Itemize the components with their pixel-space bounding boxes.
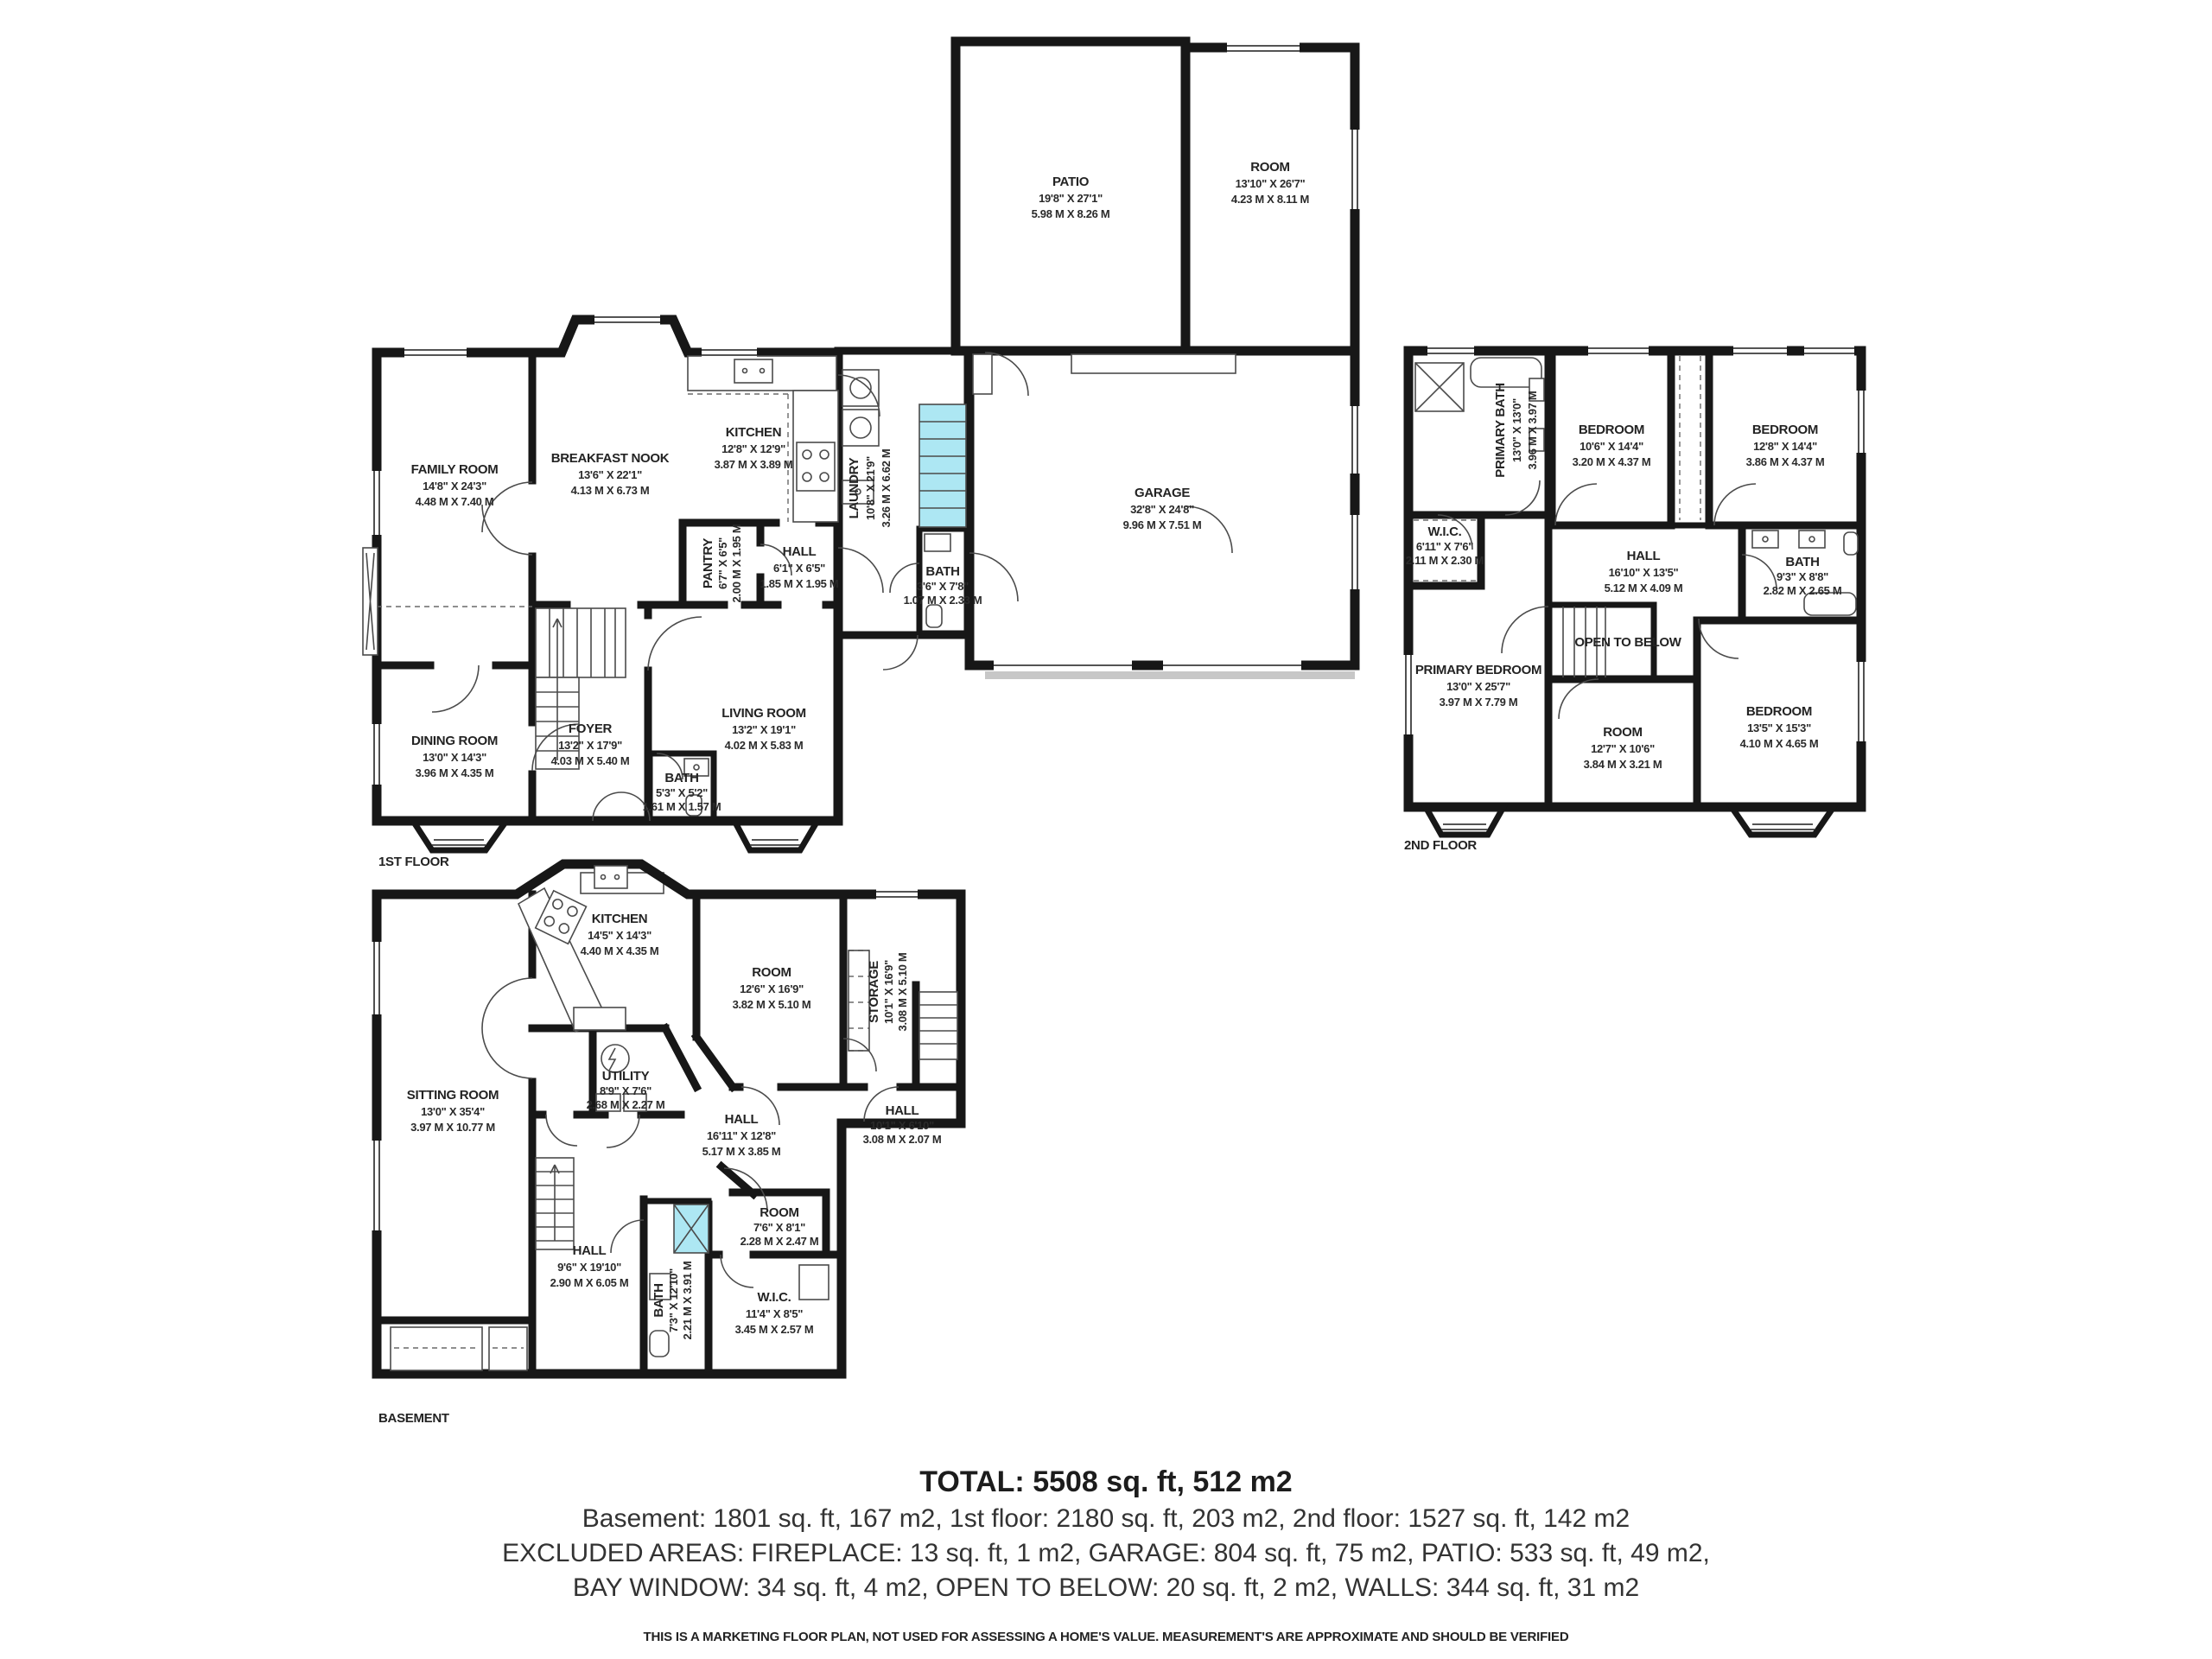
svg-text:4.40 M X 4.35 M: 4.40 M X 4.35 M: [581, 944, 659, 957]
room-label-storage: STORAGE 10'1" X 16'9" 3.08 M X 5.10 M: [867, 953, 909, 1032]
room-label-laundry: LAUNDRY 10'8" X 21'9" 3.26 M X 6.62 M: [847, 449, 893, 528]
room-label-family-room: FAMILY ROOM 14'8" X 24'3" 4.48 M X 7.40 …: [411, 462, 499, 508]
floor-label-2nd: 2ND FLOOR: [1404, 838, 1477, 853]
svg-text:5.17 M X 3.85 M: 5.17 M X 3.85 M: [702, 1145, 781, 1158]
room-label-top-room: ROOM 13'10" X 26'7" 4.23 M X 8.11 M: [1231, 160, 1309, 206]
room-label-kitchen1: KITCHEN 12'8" X 12'9" 3.87 M X 3.89 M: [715, 425, 793, 471]
room-label-utility: UTILITY 8'9" X 7'6" 2.68 M X 2.27 M: [587, 1069, 665, 1111]
svg-text:13'2" X 17'9": 13'2" X 17'9": [558, 739, 622, 752]
room-label-basement-small-room: ROOM 7'6" X 8'1" 2.28 M X 2.47 M: [741, 1205, 819, 1248]
svg-text:3.97 M X 7.79 M: 3.97 M X 7.79 M: [1440, 696, 1518, 709]
room-label-basement-hall-right: HALL 10'1" X 6'10" 3.08 M X 2.07 M: [863, 1103, 942, 1146]
svg-text:13'2" X 19'1": 13'2" X 19'1": [732, 723, 796, 736]
svg-text:4.23 M X 8.11 M: 4.23 M X 8.11 M: [1231, 193, 1309, 206]
svg-text:HALL: HALL: [1627, 549, 1661, 563]
floor-plan-drawing: FAMILY ROOM 14'8" X 24'3" 4.48 M X 7.40 …: [0, 0, 2212, 1659]
svg-text:7'6" X 8'1": 7'6" X 8'1": [753, 1221, 805, 1234]
room-label-room2: ROOM 12'7" X 10'6" 3.84 M X 3.21 M: [1584, 725, 1662, 771]
basement-closets: [391, 1327, 527, 1370]
svg-text:9'6" X 19'10": 9'6" X 19'10": [557, 1261, 621, 1274]
svg-text:3'6" X 7'8": 3'6" X 7'8": [917, 580, 969, 593]
svg-text:12'8" X 14'4": 12'8" X 14'4": [1753, 440, 1817, 453]
svg-text:4.13 M X 6.73 M: 4.13 M X 6.73 M: [571, 484, 650, 497]
svg-text:11'4" X 8'5": 11'4" X 8'5": [746, 1307, 803, 1320]
svg-text:DINING ROOM: DINING ROOM: [411, 734, 498, 748]
floor-plan-page: { "colors": { "wall":"#171717", "bath":"…: [0, 0, 2212, 1659]
svg-text:KITCHEN: KITCHEN: [726, 425, 782, 440]
svg-text:LIVING ROOM: LIVING ROOM: [721, 706, 806, 721]
svg-text:3.20 M X 4.37 M: 3.20 M X 4.37 M: [1573, 455, 1651, 468]
driveway-edge: [985, 671, 1355, 679]
laundry-stairs: [919, 404, 966, 527]
bedroom2-room: [1709, 351, 1861, 525]
room-label-hall1: HALL 6'1" X 6'5" 1.85 M X 1.95 M: [760, 544, 839, 590]
svg-text:3.96 M X 4.35 M: 3.96 M X 4.35 M: [416, 766, 494, 779]
svg-text:FOYER: FOYER: [569, 721, 613, 736]
bedroom-closets: [1671, 351, 1709, 525]
svg-text:BEDROOM: BEDROOM: [1752, 423, 1818, 437]
fireplace: [363, 548, 378, 655]
svg-text:2.90 M X 6.05 M: 2.90 M X 6.05 M: [550, 1276, 629, 1289]
svg-text:2.68 M X 2.27 M: 2.68 M X 2.27 M: [587, 1098, 665, 1111]
room-label-primary-bedroom: PRIMARY BEDROOM 13'0" X 25'7" 3.97 M X 7…: [1415, 663, 1541, 709]
svg-text:12'6" X 16'9": 12'6" X 16'9": [740, 982, 804, 995]
bedroom1-room: [1552, 351, 1671, 525]
svg-text:HALL: HALL: [725, 1112, 759, 1127]
svg-text:KITCHEN: KITCHEN: [592, 912, 648, 926]
svg-text:HALL: HALL: [573, 1243, 607, 1258]
svg-text:2.00 M X 1.95 M: 2.00 M X 1.95 M: [730, 524, 743, 603]
svg-text:4.02 M X 5.83 M: 4.02 M X 5.83 M: [725, 739, 804, 752]
svg-text:ROOM: ROOM: [1603, 725, 1642, 740]
svg-text:10'1" X 16'9": 10'1" X 16'9": [882, 960, 895, 1024]
svg-text:ROOM: ROOM: [760, 1205, 798, 1220]
svg-text:4.03 M X 5.40 M: 4.03 M X 5.40 M: [551, 754, 630, 767]
room-label-wic2: W.I.C. 6'11" X 7'6" 2.11 M X 2.30 M: [1406, 524, 1484, 567]
first-floor-plan: FAMILY ROOM 14'8" X 24'3" 4.48 M X 7.40 …: [363, 41, 1361, 893]
svg-text:6'7" X 6'5": 6'7" X 6'5": [716, 537, 729, 589]
basement-right-stairs: [919, 992, 957, 1059]
svg-text:STORAGE: STORAGE: [867, 961, 881, 1023]
svg-text:13'0" X 35'4": 13'0" X 35'4": [421, 1105, 485, 1118]
room-label-open-to-below: OPEN TO BELOW: [1574, 635, 1681, 650]
svg-text:9'3" X 8'8": 9'3" X 8'8": [1777, 570, 1828, 583]
svg-text:W.I.C.: W.I.C.: [1427, 524, 1461, 539]
second-floor-plan: PRIMARY BATH 13'0" X 13'0" 3.96 M X 3.97…: [1402, 345, 1867, 853]
svg-text:HALL: HALL: [783, 544, 817, 559]
svg-text:OPEN TO BELOW: OPEN TO BELOW: [1574, 635, 1681, 650]
svg-text:BREAKFAST NOOK: BREAKFAST NOOK: [551, 451, 670, 466]
excluded-areas-text2: BAY WINDOW: 34 sq. ft, 4 m2, OPEN TO BEL…: [0, 1573, 2212, 1603]
svg-text:13'0" X 25'7": 13'0" X 25'7": [1446, 680, 1510, 693]
primary-bath-fixtures: [1415, 358, 1544, 451]
svg-text:8'9" X 7'6": 8'9" X 7'6": [600, 1084, 652, 1097]
svg-text:13'0" X 14'3": 13'0" X 14'3": [423, 751, 486, 764]
svg-text:7'3" X 12'10": 7'3" X 12'10": [667, 1268, 680, 1332]
svg-text:10'8" X 21'9": 10'8" X 21'9": [864, 456, 877, 520]
room-label-bedroom2: BEDROOM 12'8" X 14'4" 3.86 M X 4.37 M: [1746, 423, 1825, 468]
svg-text:13'0" X 13'0": 13'0" X 13'0": [1510, 398, 1523, 462]
svg-text:BATH: BATH: [652, 1283, 666, 1317]
svg-text:ROOM: ROOM: [752, 965, 791, 980]
svg-text:BATH: BATH: [664, 771, 698, 785]
svg-text:ROOM: ROOM: [1250, 160, 1289, 175]
room-label-hall2: HALL 16'10" X 13'5" 5.12 M X 4.09 M: [1605, 549, 1683, 594]
total-area-text: TOTAL: 5508 sq. ft, 512 m2: [0, 1465, 2212, 1499]
room-dims-ft: 14'8" X 24'3": [423, 480, 486, 493]
svg-text:LAUNDRY: LAUNDRY: [847, 457, 861, 518]
floor-areas-text: Basement: 1801 sq. ft, 167 m2, 1st floor…: [0, 1504, 2212, 1534]
svg-text:HALL: HALL: [886, 1103, 919, 1118]
room-label-sitting-room: SITTING ROOM 13'0" X 35'4" 3.97 M X 10.7…: [407, 1088, 499, 1134]
room-label-basement-hall-main: HALL 16'11" X 12'8" 5.17 M X 3.85 M: [702, 1112, 781, 1158]
room-label-garage: GARAGE 32'8" X 24'8" 9.96 M X 7.51 M: [1123, 486, 1202, 531]
svg-text:BEDROOM: BEDROOM: [1746, 704, 1812, 719]
svg-text:3.86 M X 4.37 M: 3.86 M X 4.37 M: [1746, 455, 1825, 468]
svg-text:GARAGE: GARAGE: [1135, 486, 1190, 500]
svg-text:3.97 M X 10.77 M: 3.97 M X 10.77 M: [410, 1121, 495, 1134]
svg-text:2.82 M X 2.65 M: 2.82 M X 2.65 M: [1764, 584, 1842, 597]
svg-text:14'5" X 14'3": 14'5" X 14'3": [588, 929, 652, 942]
svg-text:5.98 M X 8.26 M: 5.98 M X 8.26 M: [1032, 207, 1110, 220]
svg-text:9.96 M X 7.51 M: 9.96 M X 7.51 M: [1123, 518, 1202, 531]
svg-text:12'7" X 10'6": 12'7" X 10'6": [1591, 742, 1655, 755]
disclaimer-text: THIS IS A MARKETING FLOOR PLAN, NOT USED…: [0, 1630, 2212, 1644]
basement-left-stairs: [536, 1158, 574, 1249]
room-label-bedroom3: BEDROOM 13'5" X 15'3" 4.10 M X 4.65 M: [1740, 704, 1819, 750]
svg-text:BATH: BATH: [925, 564, 959, 579]
svg-text:13'6" X 22'1": 13'6" X 22'1": [578, 468, 642, 481]
svg-text:10'1" X 6'10": 10'1" X 6'10": [870, 1119, 934, 1132]
room-label-basement-bath: BATH 7'3" X 12'10" 2.21 M X 3.91 M: [652, 1262, 694, 1340]
svg-text:13'10" X 26'7": 13'10" X 26'7": [1236, 177, 1306, 190]
svg-text:PRIMARY BEDROOM: PRIMARY BEDROOM: [1415, 663, 1541, 677]
floor-label-1st: 1ST FLOOR: [378, 855, 449, 869]
svg-text:6'1" X 6'5": 6'1" X 6'5": [773, 562, 825, 575]
area-summary: TOTAL: 5508 sq. ft, 512 m2 Basement: 180…: [0, 1465, 2212, 1608]
svg-text:1.07 M X 2.33 M: 1.07 M X 2.33 M: [904, 594, 982, 607]
svg-text:BATH: BATH: [1785, 555, 1819, 569]
svg-text:10'6" X 14'4": 10'6" X 14'4": [1580, 440, 1643, 453]
svg-text:UTILITY: UTILITY: [602, 1069, 650, 1084]
svg-text:13'5" X 15'3": 13'5" X 15'3": [1747, 721, 1811, 734]
svg-text:PRIMARY BATH: PRIMARY BATH: [1493, 383, 1508, 477]
svg-text:16'11" X 12'8": 16'11" X 12'8": [707, 1129, 776, 1142]
room-label-bedroom1: BEDROOM 10'6" X 14'4" 3.20 M X 4.37 M: [1573, 423, 1651, 468]
basement-plan: KITCHEN 14'5" X 14'3" 4.40 M X 4.35 M RO…: [371, 864, 961, 1426]
svg-text:3.84 M X 3.21 M: 3.84 M X 3.21 M: [1584, 758, 1662, 771]
svg-text:12'8" X 12'9": 12'8" X 12'9": [721, 442, 785, 455]
svg-text:2.28 M X 2.47 M: 2.28 M X 2.47 M: [741, 1235, 819, 1248]
room-label-dining-room: DINING ROOM 13'0" X 14'3" 3.96 M X 4.35 …: [411, 734, 498, 779]
garage-details: [973, 354, 1236, 394]
svg-text:2.11 M X 2.30 M: 2.11 M X 2.30 M: [1406, 554, 1484, 567]
svg-text:6'11" X 7'6": 6'11" X 7'6": [1416, 540, 1473, 553]
svg-text:W.I.C.: W.I.C.: [757, 1290, 791, 1305]
room-label-patio: PATIO 19'8" X 27'1" 5.98 M X 8.26 M: [1032, 175, 1110, 220]
svg-text:PATIO: PATIO: [1052, 175, 1090, 189]
svg-text:BEDROOM: BEDROOM: [1579, 423, 1644, 437]
room-label-basement-room: ROOM 12'6" X 16'9" 3.82 M X 5.10 M: [733, 965, 811, 1011]
svg-text:5.12 M X 4.09 M: 5.12 M X 4.09 M: [1605, 582, 1683, 594]
excluded-areas-text: EXCLUDED AREAS: FIREPLACE: 13 sq. ft, 1 …: [0, 1539, 2212, 1568]
room-label-breakfast-nook: BREAKFAST NOOK 13'6" X 22'1" 4.13 M X 6.…: [551, 451, 670, 497]
svg-text:19'8" X 27'1": 19'8" X 27'1": [1039, 192, 1103, 205]
svg-text:32'8" X 24'8": 32'8" X 24'8": [1130, 503, 1194, 516]
room-label-powder-bath: BATH 5'3" X 5'2" 1.61 M X 1.57 M: [643, 771, 721, 813]
floor-label-basement: BASEMENT: [378, 1411, 449, 1426]
room-name: FAMILY ROOM: [411, 462, 499, 477]
svg-text:3.26 M X 6.62 M: 3.26 M X 6.62 M: [880, 449, 893, 528]
svg-text:3.45 M X 2.57 M: 3.45 M X 2.57 M: [735, 1323, 814, 1336]
svg-text:3.82 M X 5.10 M: 3.82 M X 5.10 M: [733, 998, 811, 1011]
svg-text:5'3" X 5'2": 5'3" X 5'2": [656, 786, 708, 799]
svg-text:3.08 M X 2.07 M: 3.08 M X 2.07 M: [863, 1133, 942, 1146]
room-label-basement-hall-lower: HALL 9'6" X 19'10" 2.90 M X 6.05 M: [550, 1243, 629, 1289]
room-label-bath2: BATH 9'3" X 8'8" 2.82 M X 2.65 M: [1764, 555, 1842, 597]
svg-text:4.10 M X 4.65 M: 4.10 M X 4.65 M: [1740, 737, 1819, 750]
room-label-pantry: PANTRY 6'7" X 6'5" 2.00 M X 1.95 M: [701, 524, 743, 603]
room-label-basement-kitchen: KITCHEN 14'5" X 14'3" 4.40 M X 4.35 M: [581, 912, 659, 957]
first-floor-labels: FAMILY ROOM 14'8" X 24'3" 4.48 M X 7.40 …: [378, 160, 1309, 869]
svg-text:3.87 M X 3.89 M: 3.87 M X 3.89 M: [715, 458, 793, 471]
svg-text:SITTING ROOM: SITTING ROOM: [407, 1088, 499, 1103]
room-label-primary-bath: PRIMARY BATH 13'0" X 13'0" 3.96 M X 3.97…: [1493, 383, 1539, 477]
svg-text:16'10" X 13'5": 16'10" X 13'5": [1609, 566, 1679, 579]
room-dims-m: 4.48 M X 7.40 M: [416, 495, 494, 508]
svg-text:3.08 M X 5.10 M: 3.08 M X 5.10 M: [896, 953, 909, 1032]
svg-text:1.85 M X 1.95 M: 1.85 M X 1.95 M: [760, 577, 839, 590]
svg-text:PANTRY: PANTRY: [701, 538, 715, 588]
svg-text:1.61 M X 1.57 M: 1.61 M X 1.57 M: [643, 800, 721, 813]
svg-text:2.21 M X 3.91 M: 2.21 M X 3.91 M: [681, 1262, 694, 1340]
room-label-living-room: LIVING ROOM 13'2" X 19'1" 4.02 M X 5.83 …: [721, 706, 806, 752]
svg-text:3.96 M X 3.97 M: 3.96 M X 3.97 M: [1526, 391, 1539, 470]
